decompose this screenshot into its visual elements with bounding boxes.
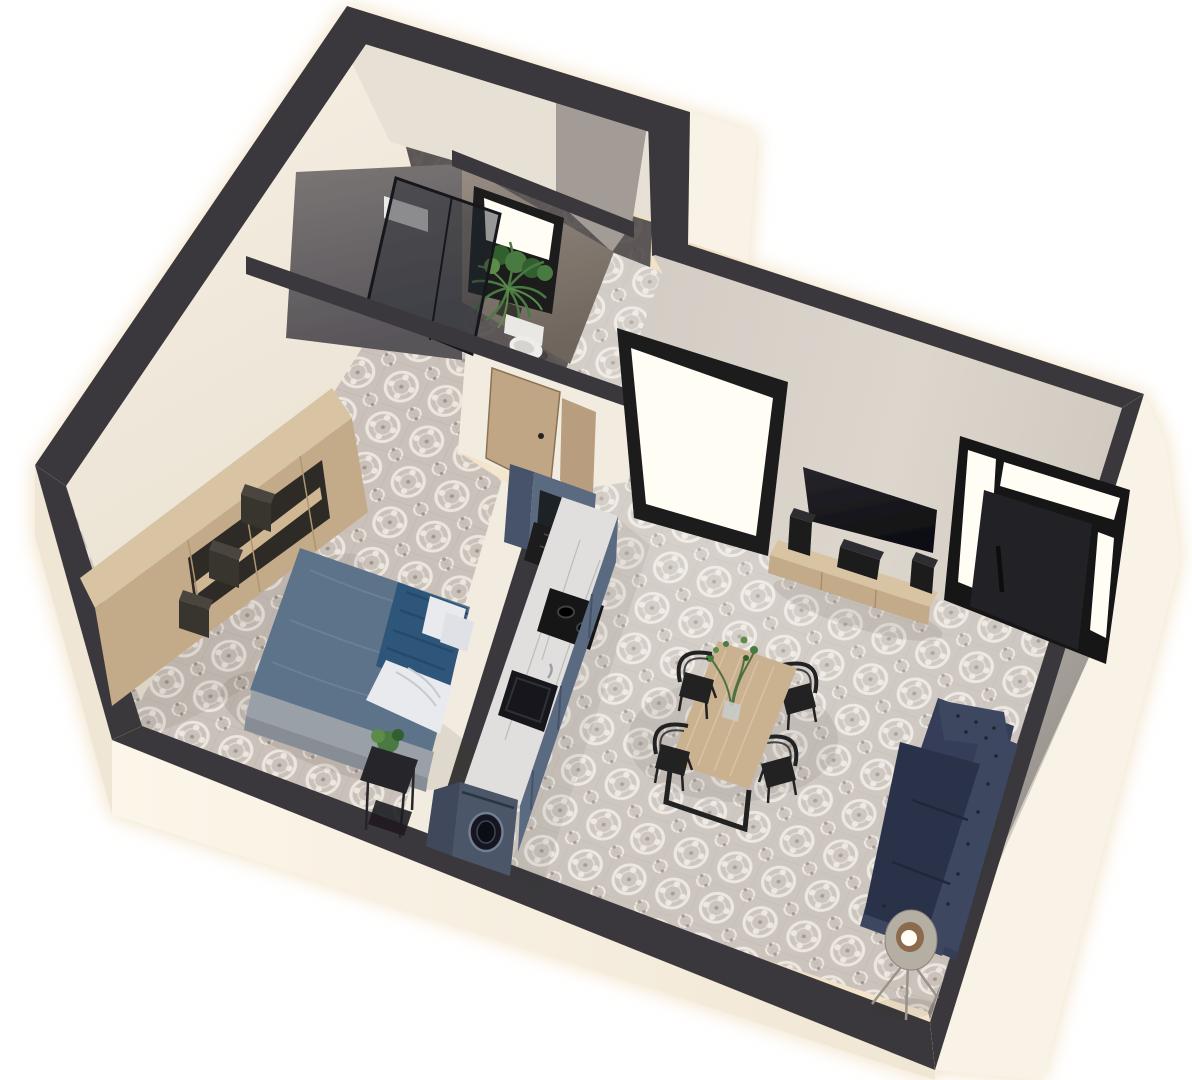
lamp-bulb xyxy=(901,930,917,946)
floorplan-render xyxy=(0,0,1192,1080)
exterior-wall-bathroom-nub xyxy=(688,112,757,262)
scene-canvas xyxy=(0,0,1192,1080)
band-bathroom-east xyxy=(648,112,690,256)
washer-door-glass xyxy=(477,821,495,843)
burner xyxy=(558,607,574,618)
bedroom-door-handle xyxy=(538,433,544,439)
